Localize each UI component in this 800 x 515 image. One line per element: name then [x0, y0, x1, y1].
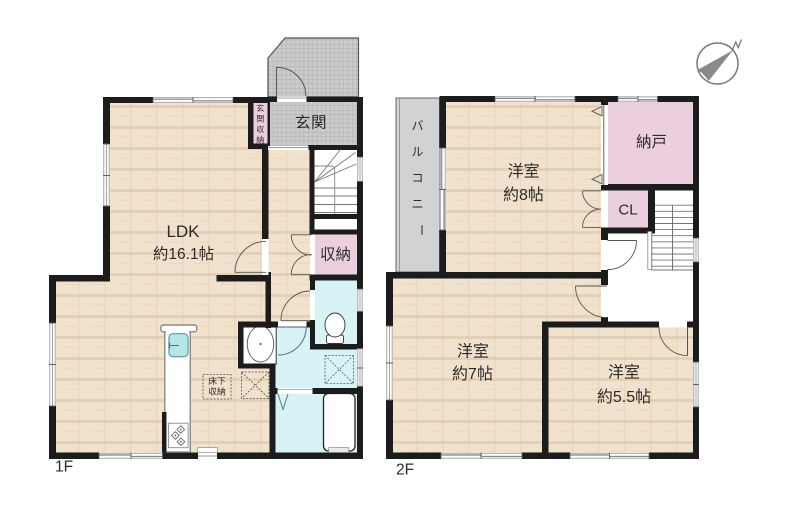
svg-text:洋室: 洋室: [608, 364, 640, 382]
svg-text:2F: 2F: [396, 462, 414, 479]
svg-text:LDK: LDK: [166, 222, 200, 241]
svg-text:洋室: 洋室: [457, 343, 489, 361]
svg-text:バ: バ: [411, 119, 423, 133]
svg-text:洋室: 洋室: [508, 163, 540, 181]
svg-text:床下: 床下: [208, 375, 226, 386]
svg-text:約16.1帖: 約16.1帖: [153, 245, 214, 263]
svg-text:収納: 収納: [320, 246, 351, 264]
svg-text:コ: コ: [411, 171, 423, 185]
svg-text:関: 関: [256, 115, 264, 124]
svg-text:約5.5帖: 約5.5帖: [597, 388, 651, 406]
svg-text:ニ: ニ: [411, 197, 423, 211]
svg-text:収: 収: [256, 124, 264, 134]
svg-text:約8帖: 約8帖: [503, 186, 544, 204]
svg-text:1F: 1F: [55, 459, 73, 476]
svg-text:玄: 玄: [256, 103, 264, 113]
svg-text:約7帖: 約7帖: [452, 365, 493, 383]
svg-text:収納: 収納: [208, 386, 226, 397]
svg-text:CL: CL: [618, 202, 637, 219]
svg-text:ー: ー: [415, 224, 429, 236]
svg-text:玄関: 玄関: [295, 114, 327, 132]
svg-text:納戸: 納戸: [636, 133, 667, 151]
svg-text:納: 納: [256, 135, 264, 145]
svg-text:ル: ル: [411, 145, 423, 159]
